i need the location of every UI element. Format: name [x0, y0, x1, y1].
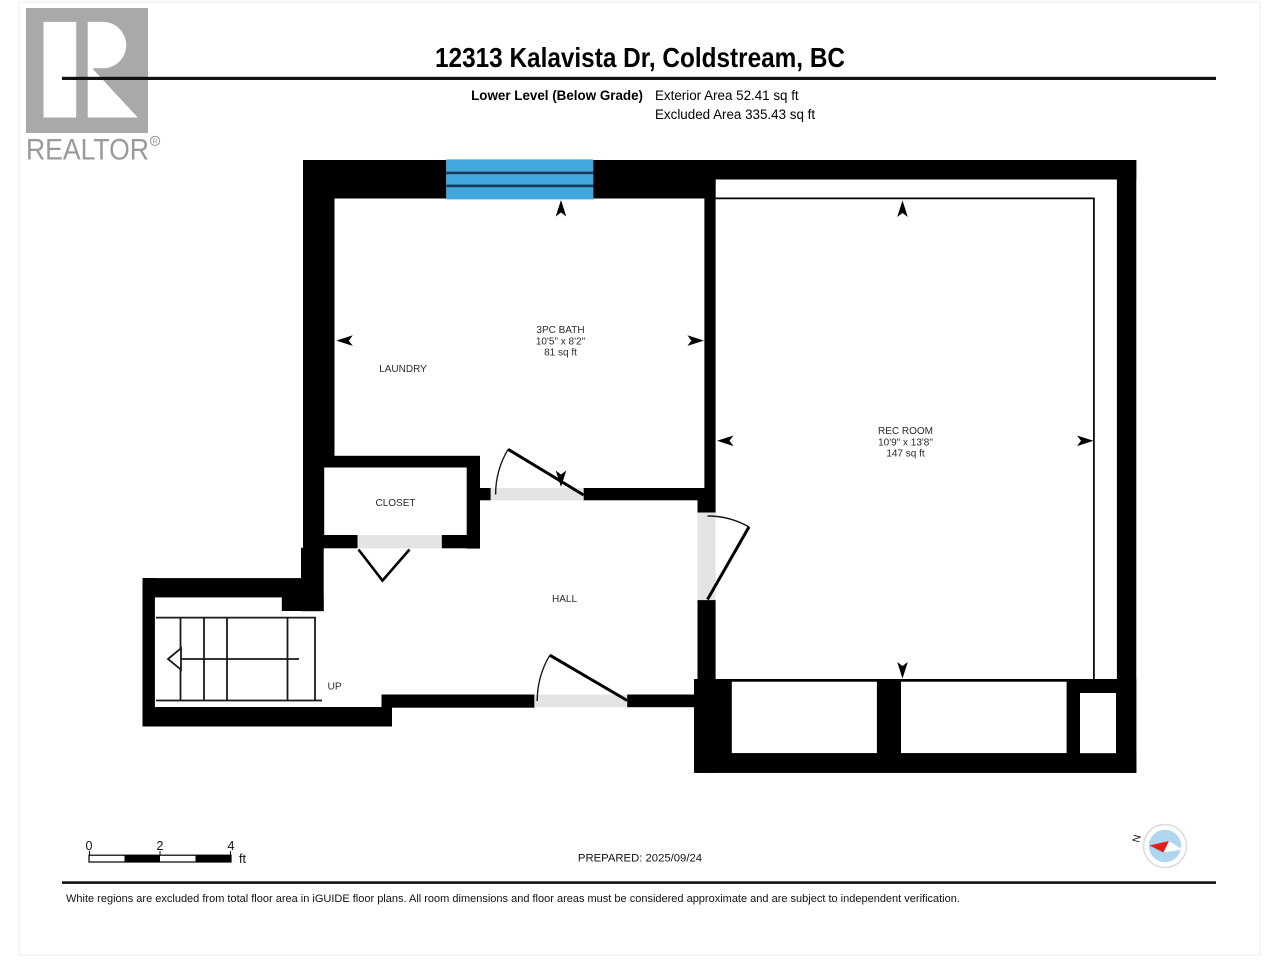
svg-text:White regions are excluded fro: White regions are excluded from total fl…	[66, 893, 960, 905]
svg-text:3PC BATH: 3PC BATH	[536, 325, 584, 336]
svg-text:Excluded Area 335.43 sq ft: Excluded Area 335.43 sq ft	[655, 107, 815, 122]
svg-text:Lower Level (Below Grade): Lower Level (Below Grade)	[471, 88, 643, 103]
svg-text:REC ROOM: REC ROOM	[878, 426, 933, 437]
svg-text:CLOSET: CLOSET	[375, 498, 415, 509]
svg-text:PREPARED: 2025/09/24: PREPARED: 2025/09/24	[578, 853, 702, 865]
svg-text:147 sq ft: 147 sq ft	[886, 449, 925, 460]
svg-text:Exterior Area 52.41 sq ft: Exterior Area 52.41 sq ft	[655, 88, 799, 103]
svg-text:N: N	[1130, 834, 1144, 844]
svg-text:HALL: HALL	[552, 594, 577, 605]
svg-text:UP: UP	[328, 682, 342, 693]
svg-text:81 sq ft: 81 sq ft	[544, 348, 577, 359]
svg-text:R: R	[152, 137, 157, 146]
svg-text:12313 Kalavista Dr, Coldstream: 12313 Kalavista Dr, Coldstream, BC	[435, 42, 845, 73]
svg-text:REALTOR: REALTOR	[26, 134, 149, 167]
svg-text:LAUNDRY: LAUNDRY	[379, 364, 427, 375]
svg-text:2: 2	[157, 839, 164, 853]
svg-text:ft: ft	[239, 852, 246, 866]
svg-text:10'9" x 13'8": 10'9" x 13'8"	[878, 438, 933, 449]
svg-text:4: 4	[228, 839, 235, 853]
svg-text:0: 0	[86, 839, 93, 853]
svg-text:10'5" x 8'2": 10'5" x 8'2"	[536, 337, 586, 348]
